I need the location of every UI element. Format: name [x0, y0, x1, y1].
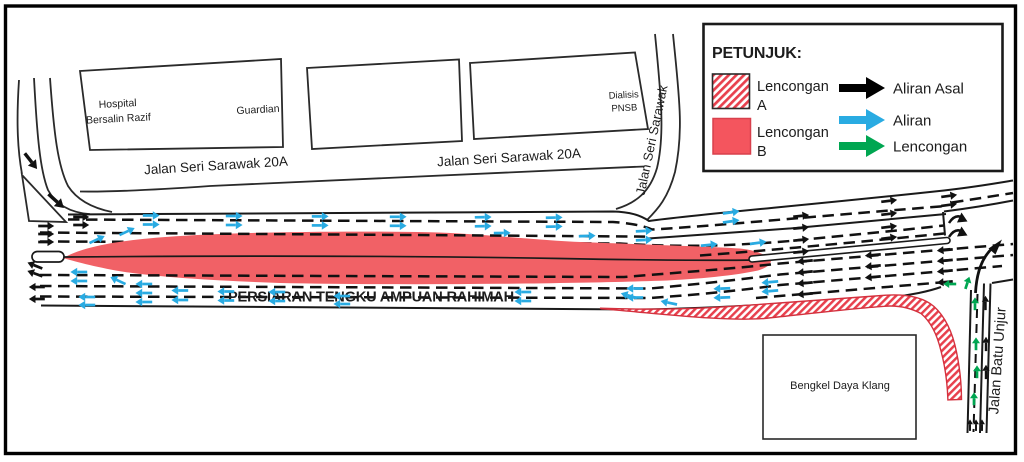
svg-text:Hospital: Hospital — [98, 97, 137, 111]
svg-text:Bengkel Daya Klang: Bengkel Daya Klang — [790, 380, 890, 392]
svg-text:PETUNJUK:: PETUNJUK: — [712, 45, 802, 62]
svg-text:B: B — [757, 144, 767, 160]
svg-text:Aliran: Aliran — [893, 113, 931, 130]
svg-text:Lencongan: Lencongan — [757, 125, 829, 141]
svg-text:A: A — [757, 98, 767, 114]
svg-text:PNSB: PNSB — [611, 102, 637, 114]
svg-text:Dialisis: Dialisis — [608, 89, 639, 102]
svg-text:Aliran Asal: Aliran Asal — [893, 81, 964, 98]
svg-text:Lencongan: Lencongan — [757, 79, 829, 95]
svg-text:Guardian: Guardian — [236, 103, 280, 117]
svg-text:Lencongan: Lencongan — [893, 139, 967, 156]
